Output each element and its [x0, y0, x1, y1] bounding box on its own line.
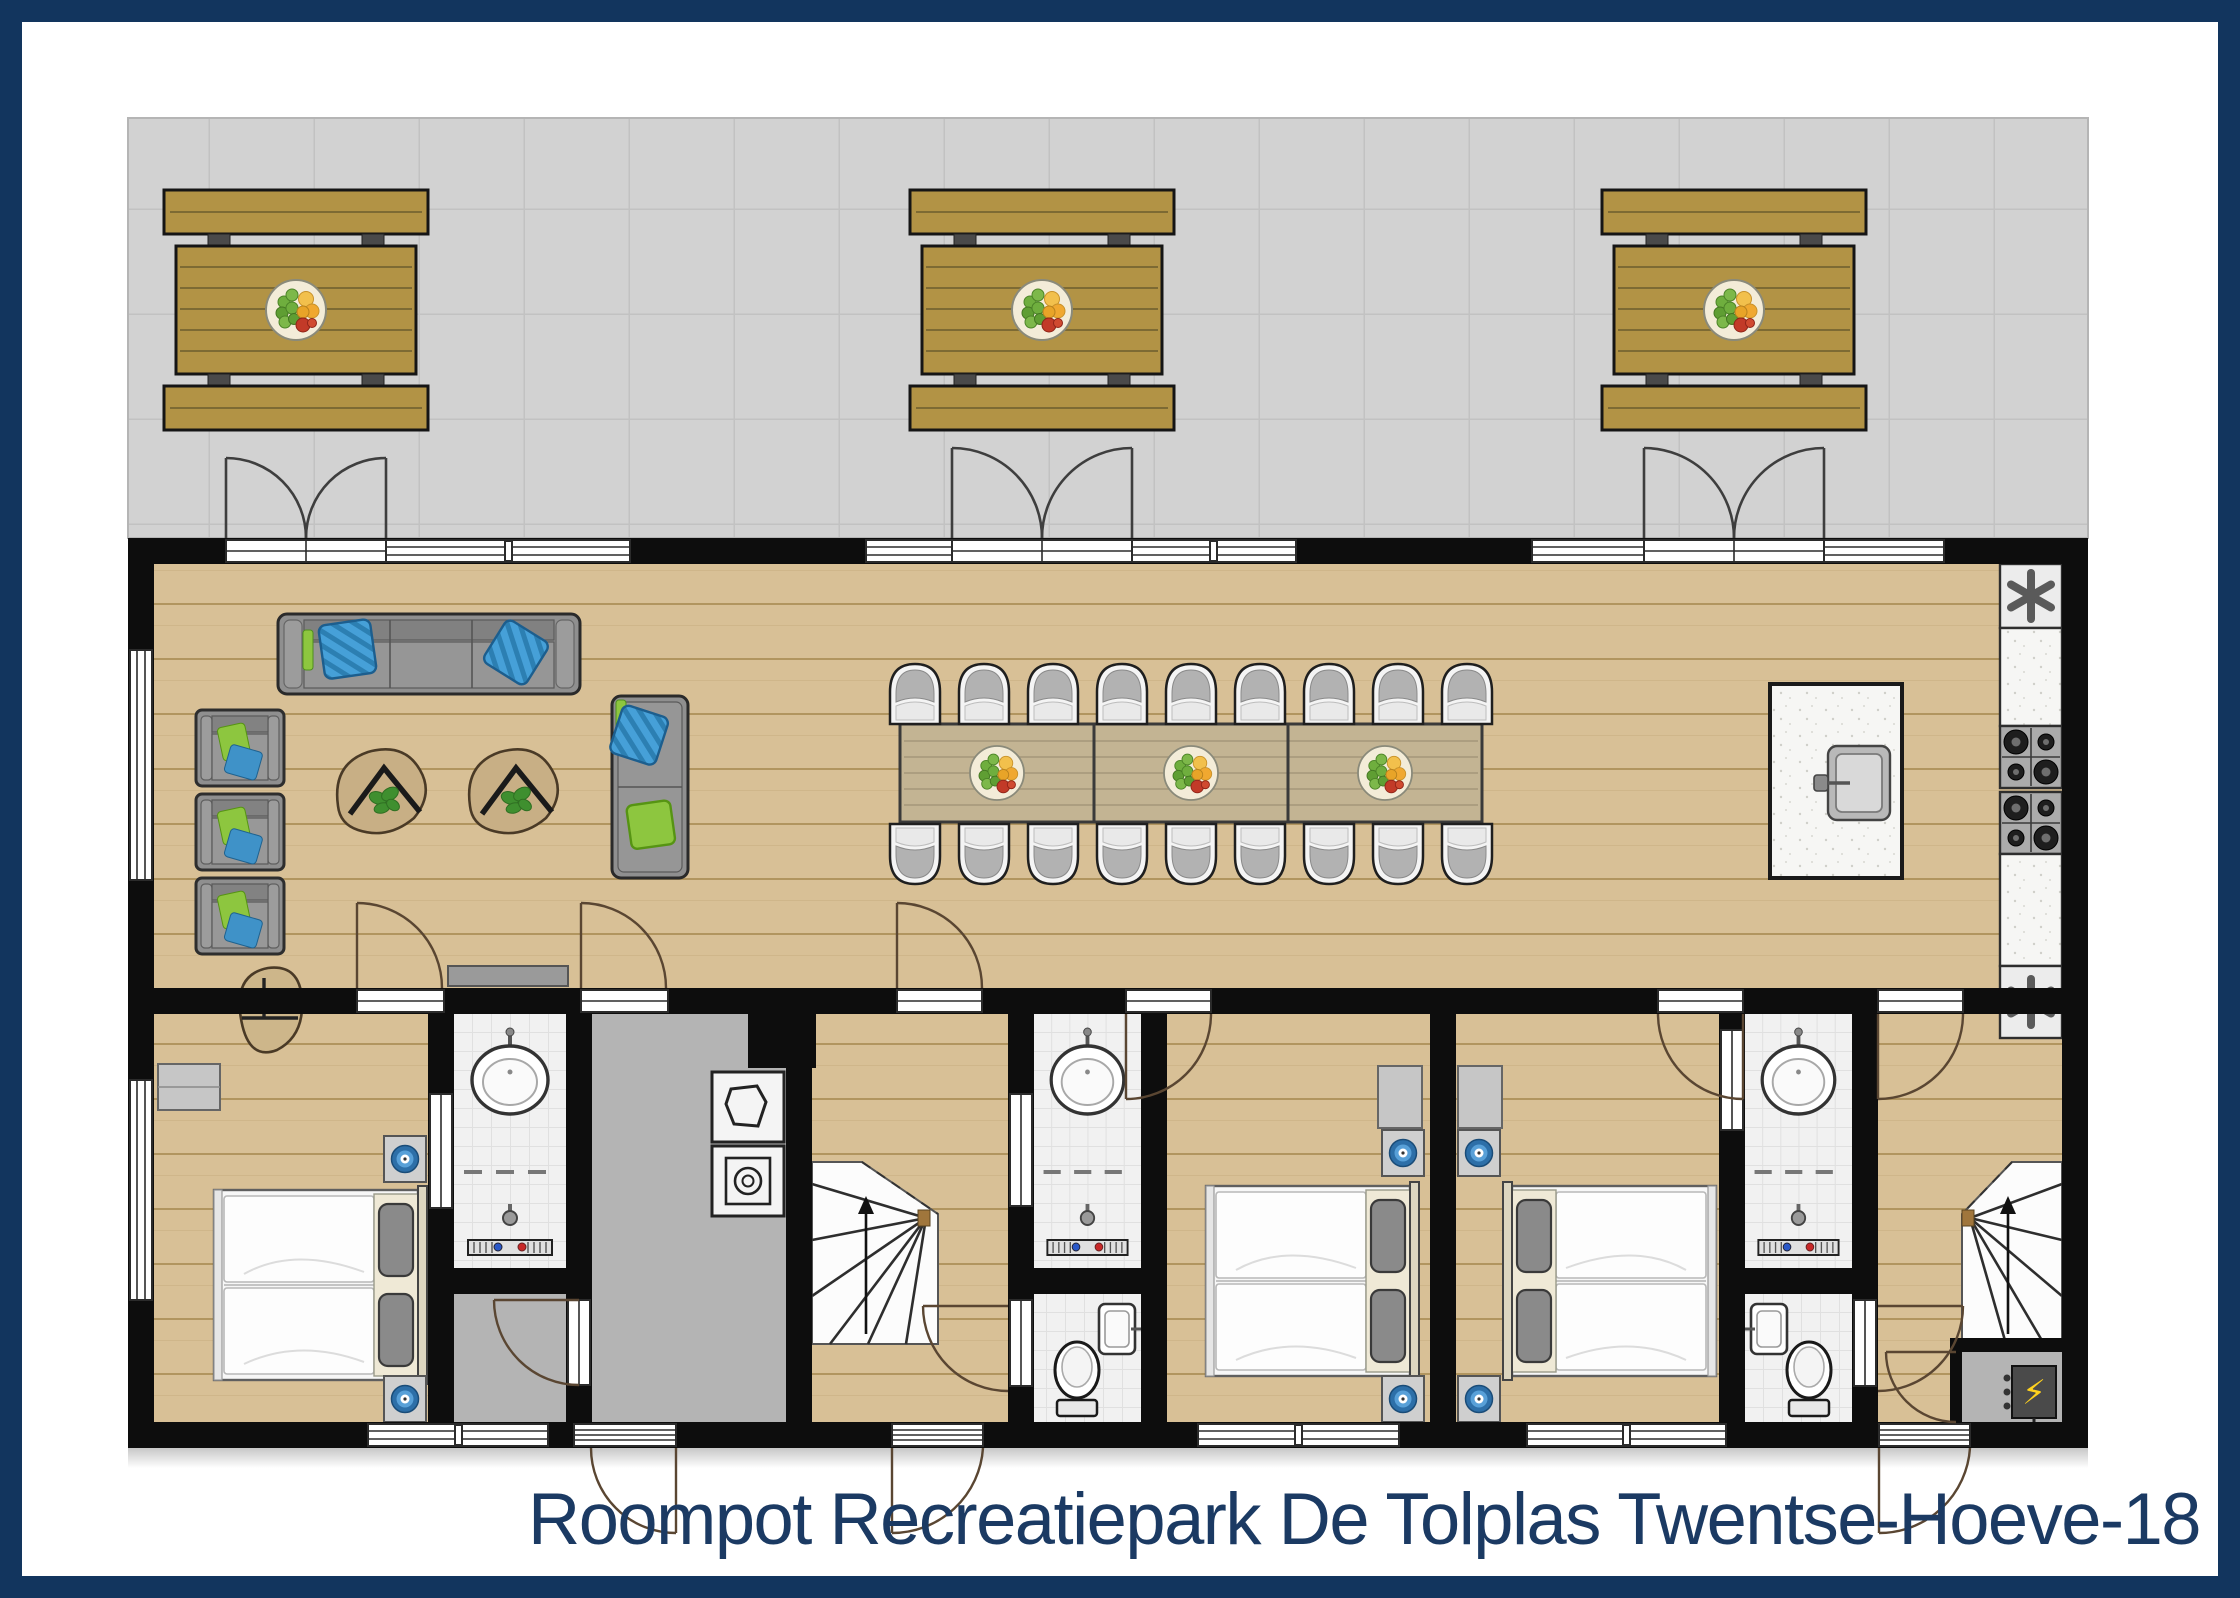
- armchair: [196, 794, 284, 870]
- door-sill: [952, 540, 1132, 562]
- window: [1824, 540, 1944, 562]
- wall-shadow: [128, 1448, 2088, 1468]
- window: [130, 650, 152, 880]
- dining-chair: [1166, 664, 1216, 724]
- nightstand: [384, 1136, 426, 1182]
- armchair: [196, 878, 284, 954]
- sofa-small: [609, 696, 688, 878]
- terrace: [128, 118, 2088, 538]
- kitchen-island: [1770, 684, 1902, 878]
- dining-chair: [1028, 824, 1078, 884]
- window: [1527, 1424, 1726, 1446]
- dining-chair: [1235, 664, 1285, 724]
- door-sill: [1126, 990, 1211, 1012]
- lounge-chair: [337, 749, 426, 833]
- dining-area: [890, 664, 1492, 884]
- window: [368, 1424, 548, 1446]
- sofa: [278, 614, 580, 694]
- double-bed: [1503, 1182, 1716, 1380]
- window: [386, 540, 630, 562]
- dining-chair: [1442, 824, 1492, 884]
- floorplan-canvas: ⚡: [0, 0, 2240, 1598]
- dining-chair: [890, 824, 940, 884]
- island-faucet: [1814, 775, 1828, 791]
- counter: [2000, 628, 2062, 726]
- nightstand: [1458, 1130, 1500, 1176]
- picnic-table: [910, 190, 1174, 430]
- dresser: [1378, 1066, 1422, 1128]
- door-sill: [1854, 1300, 1876, 1386]
- door-sill: [1010, 1094, 1032, 1206]
- dining-chair: [1097, 664, 1147, 724]
- towel-shelf: [448, 966, 568, 986]
- window: [866, 540, 952, 562]
- fruit-bowl: [1164, 746, 1218, 800]
- boiler: [712, 1072, 784, 1142]
- door-sill: [430, 1094, 452, 1208]
- window: [1532, 540, 1644, 562]
- door-sill: [581, 990, 668, 1012]
- door-sill: [574, 1424, 676, 1446]
- meter-lightning-icon: ⚡: [2022, 1373, 2046, 1413]
- double-bed: [1206, 1182, 1419, 1380]
- dining-chair: [959, 824, 1009, 884]
- double-bed: [214, 1186, 427, 1384]
- kitchen-counter-strip: [2000, 564, 2062, 1038]
- window: [1198, 1424, 1399, 1446]
- washing-machine: [712, 1146, 784, 1216]
- door-sill: [568, 1300, 590, 1385]
- dining-chair: [1097, 824, 1147, 884]
- door-sill: [1010, 1300, 1032, 1386]
- nightstand: [1382, 1130, 1424, 1176]
- counter: [2000, 854, 2062, 966]
- gas-hob: [2000, 726, 2062, 788]
- dining-chair: [1304, 664, 1354, 724]
- door-sill: [1878, 990, 1963, 1012]
- dining-chair: [1373, 824, 1423, 884]
- floorplan-page: ⚡: [0, 0, 2240, 1598]
- fruit-bowl: [1358, 746, 1412, 800]
- dining-chair: [1442, 664, 1492, 724]
- nightstand: [384, 1376, 426, 1422]
- plan-title: Roompot Recreatiepark De Tolplas Twentse…: [81, 1478, 2200, 1561]
- nightstand: [1382, 1376, 1424, 1422]
- door-sill: [1721, 1030, 1743, 1130]
- dining-chair: [1373, 664, 1423, 724]
- shower-room-3: [1745, 1014, 1852, 1268]
- dining-chair: [1028, 664, 1078, 724]
- door-sill: [1879, 1424, 1970, 1446]
- toilet-room-2: [1745, 1294, 1852, 1422]
- toilet-room-1: [1034, 1294, 1141, 1422]
- dresser: [1458, 1066, 1502, 1128]
- door-sill: [1644, 540, 1824, 562]
- dining-chair: [890, 664, 940, 724]
- fruit-bowl: [970, 746, 1024, 800]
- gas-hob: [2000, 792, 2062, 854]
- door-sill: [1658, 990, 1743, 1012]
- window: [130, 1080, 152, 1300]
- blue-striped-pillow: [318, 619, 377, 680]
- dining-chair: [1235, 824, 1285, 884]
- dining-chair: [959, 664, 1009, 724]
- nightstand: [1458, 1376, 1500, 1422]
- door-sill: [226, 540, 386, 562]
- door-sill: [892, 1424, 983, 1446]
- picnic-table: [164, 190, 428, 430]
- picnic-table: [1602, 190, 1866, 430]
- dining-chair: [1304, 824, 1354, 884]
- green-pillow: [303, 630, 313, 670]
- lounge-chair: [469, 749, 558, 833]
- window: [1132, 540, 1296, 562]
- green-pillow: [626, 800, 676, 850]
- door-sill: [357, 990, 444, 1012]
- armchair: [196, 710, 284, 786]
- door-sill: [897, 990, 982, 1012]
- shower-room-1: [454, 1014, 566, 1268]
- dining-chair: [1166, 824, 1216, 884]
